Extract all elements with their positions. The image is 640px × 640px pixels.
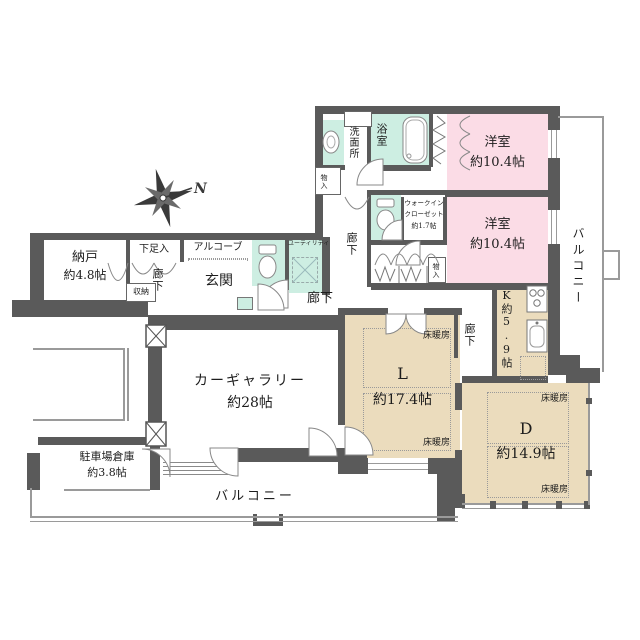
utility-label: ユーティリティ xyxy=(288,240,323,247)
closet-box xyxy=(315,167,341,195)
window-line xyxy=(551,210,552,244)
floor-heating-label: 床暖房 xyxy=(520,485,568,496)
bedroom-top-size: 約10.4帖 xyxy=(447,155,548,171)
wall xyxy=(338,308,388,315)
window-tick xyxy=(586,398,592,404)
wic-label-line1: ウォークイン xyxy=(403,200,445,208)
wall xyxy=(27,453,40,490)
balcony-right-label: バルコニー xyxy=(572,212,584,322)
wall xyxy=(367,190,371,287)
storage-room-size: 約4.8帖 xyxy=(44,268,126,282)
compass-north-label: N xyxy=(193,181,208,197)
wall xyxy=(150,437,160,490)
wall xyxy=(30,240,44,303)
balcony-edge xyxy=(30,488,32,518)
wall xyxy=(338,315,345,425)
window-line xyxy=(551,130,552,158)
floor-heating-label: 床暖房 xyxy=(396,331,450,342)
wic-label-line2: クローゼット xyxy=(403,211,445,219)
entrance-bench xyxy=(237,297,253,310)
balcony-edge xyxy=(64,489,150,491)
car-gallery-size: 約28帖 xyxy=(162,395,338,412)
toilet2-floor xyxy=(371,195,401,240)
floor-heating-label: 床暖房 xyxy=(520,394,568,405)
kitchen-pantry-zone xyxy=(520,356,546,380)
floor-plan: N xyxy=(0,0,640,640)
balcony-edge xyxy=(30,516,458,518)
toilet1-floor xyxy=(252,240,285,286)
utility-equipment-zone xyxy=(292,257,318,283)
entrance-label: 玄関 xyxy=(190,273,248,290)
balcony-bottom-label: バルコニー xyxy=(200,489,310,505)
corridor-label: 廊下 xyxy=(346,228,357,260)
bedroom-top-closet-floor xyxy=(431,113,447,167)
window-line xyxy=(556,210,557,244)
wall xyxy=(285,240,289,290)
window-tick xyxy=(490,501,496,509)
dining-label: D xyxy=(462,419,590,438)
balcony-edge xyxy=(558,116,604,118)
wall xyxy=(180,240,184,262)
shutter-band xyxy=(163,462,228,477)
corridor-label: 廊下 xyxy=(152,262,163,298)
wall xyxy=(437,460,455,522)
bedroom-mid-size: 約10.4帖 xyxy=(447,237,548,253)
wall xyxy=(148,315,345,330)
garage-gate-line xyxy=(127,348,129,421)
window xyxy=(548,130,560,158)
dining-size: 約14.9帖 xyxy=(462,446,590,463)
living-size: 約17.4帖 xyxy=(345,392,460,409)
wall xyxy=(445,190,560,197)
parking-storage-label: 駐車場倉庫 xyxy=(64,450,150,463)
washroom-label: 洗面所 xyxy=(347,120,357,164)
driveway-line xyxy=(33,419,125,421)
bathroom-label: 浴室 xyxy=(376,120,387,150)
balcony-edge-bump xyxy=(602,250,620,280)
corridor-label: 廊下 xyxy=(464,318,475,352)
wic-size: 約1.7帖 xyxy=(403,222,445,230)
alcove-label: アルコーブ xyxy=(186,242,250,254)
balcony-edge xyxy=(30,521,458,522)
driveway-line xyxy=(33,348,125,350)
garage-gate-line xyxy=(123,348,125,421)
living-label: L xyxy=(345,364,460,383)
kitchen-label: K約5.9帖 xyxy=(501,289,512,369)
window-tick xyxy=(522,501,528,509)
wall xyxy=(548,244,560,358)
window xyxy=(548,210,560,244)
wall xyxy=(492,290,497,383)
bedroom-mid-label: 洋室 xyxy=(447,217,548,233)
wall xyxy=(12,300,148,317)
window-tick xyxy=(586,470,592,476)
wall xyxy=(454,313,458,358)
window-tick xyxy=(556,501,562,509)
corridor-label: 廊下 xyxy=(297,291,343,307)
closet-label: 物入 xyxy=(320,171,327,193)
closet-label: 物入 xyxy=(432,260,439,282)
window-line xyxy=(368,463,428,464)
alcove-boundary xyxy=(188,258,248,260)
window xyxy=(368,458,428,474)
wall xyxy=(371,190,447,195)
parking-storage-size: 約3.8帖 xyxy=(64,466,150,479)
wall xyxy=(38,437,152,445)
compass-icon: N xyxy=(127,162,208,235)
window-line xyxy=(368,469,428,470)
bedroom-top-label: 洋室 xyxy=(447,135,548,151)
wall xyxy=(369,165,431,171)
balcony-edge xyxy=(602,116,604,372)
wall xyxy=(148,345,162,427)
wall xyxy=(371,240,445,245)
wall xyxy=(548,158,560,210)
bedroom-top-floor xyxy=(447,113,548,192)
wall xyxy=(232,448,358,462)
wall xyxy=(548,106,560,130)
wall xyxy=(424,308,462,315)
wall xyxy=(453,494,465,508)
storage-room-label: 納戸 xyxy=(50,250,120,266)
wall xyxy=(429,110,433,167)
car-gallery-label: カーギャラリー xyxy=(162,373,338,390)
shoe-cabinet-label: 下足入 xyxy=(128,244,180,256)
wall xyxy=(566,368,600,383)
wall xyxy=(30,233,322,240)
window-line xyxy=(556,130,557,158)
floor-heating-label: 床暖房 xyxy=(396,438,450,449)
